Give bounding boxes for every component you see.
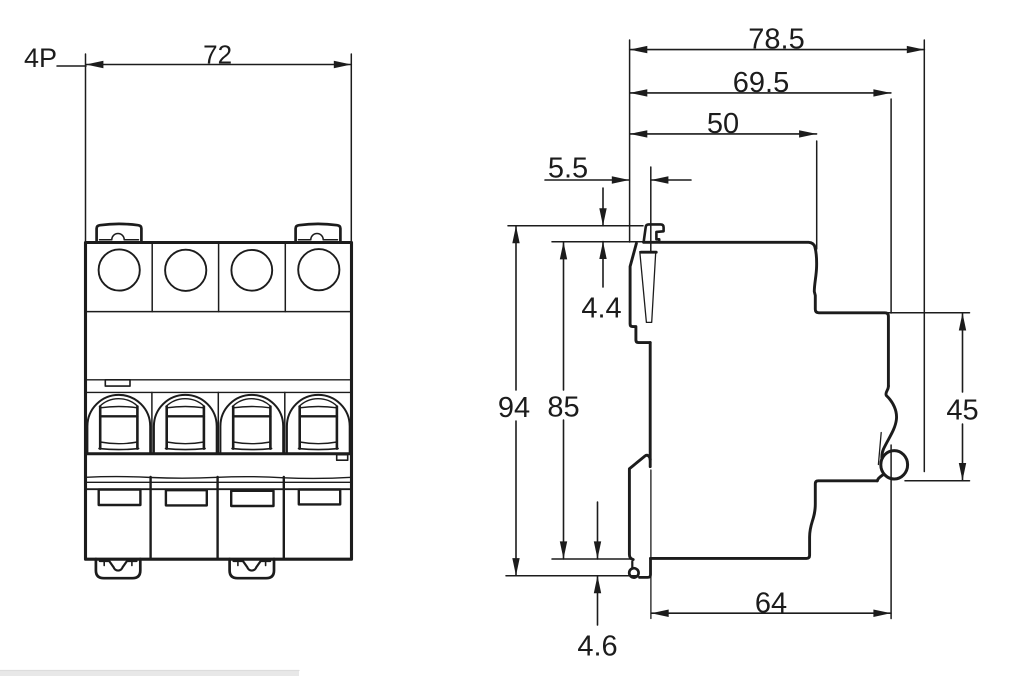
svg-text:72: 72 [203, 40, 232, 70]
svg-text:45: 45 [946, 395, 978, 427]
svg-text:5.5: 5.5 [548, 153, 588, 185]
svg-text:85: 85 [547, 392, 579, 424]
svg-text:78.5: 78.5 [748, 24, 804, 56]
svg-text:4.4: 4.4 [581, 293, 621, 325]
svg-text:64: 64 [755, 588, 787, 620]
svg-text:4.6: 4.6 [577, 631, 617, 663]
svg-text:94: 94 [498, 392, 530, 424]
svg-text:4P: 4P [24, 43, 57, 73]
svg-text:50: 50 [707, 108, 739, 140]
svg-text:69.5: 69.5 [733, 67, 789, 99]
